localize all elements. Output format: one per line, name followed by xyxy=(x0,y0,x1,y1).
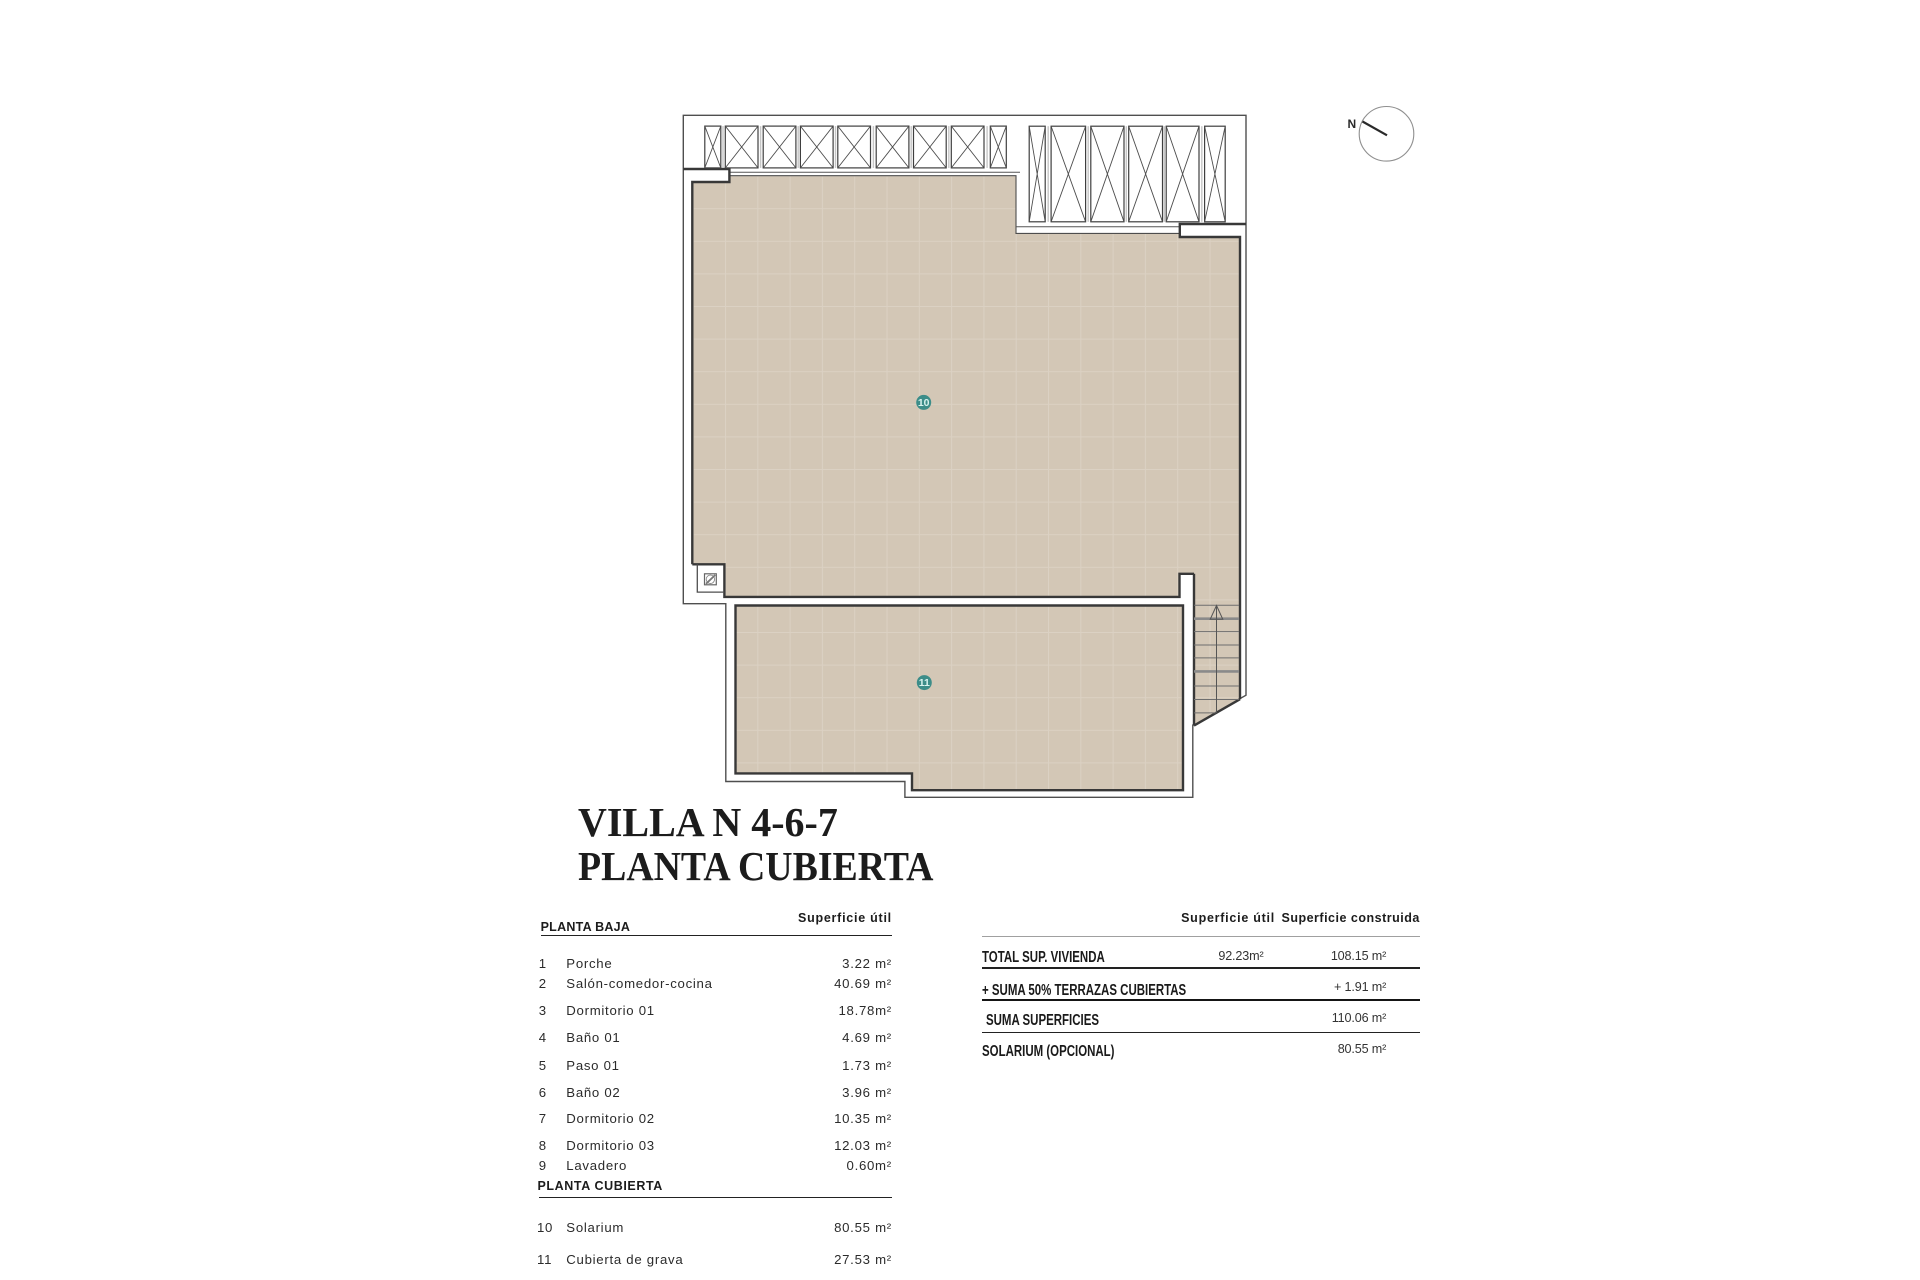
svg-text:11: 11 xyxy=(919,677,930,689)
svg-text:10: 10 xyxy=(918,397,930,409)
svg-text:N: N xyxy=(1348,117,1357,131)
